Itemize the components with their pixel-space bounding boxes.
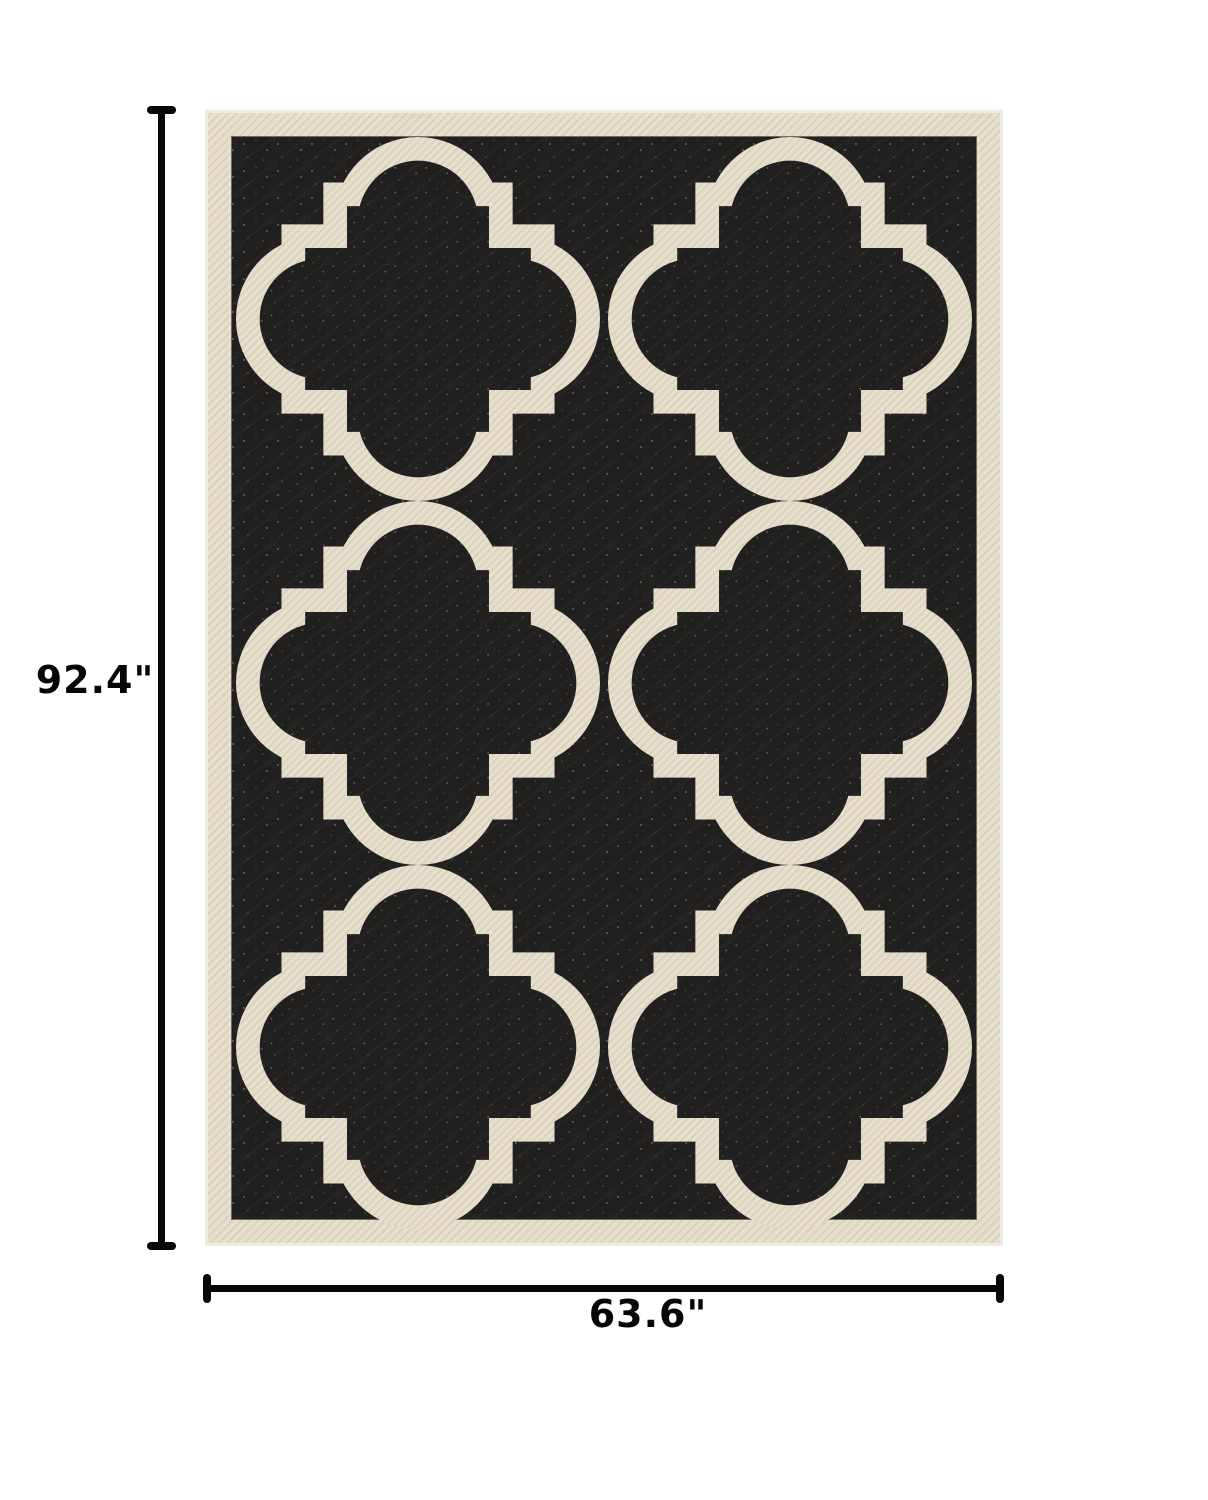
height-label: 92.4" xyxy=(10,658,180,702)
width-label: 63.6" xyxy=(563,1292,733,1336)
width-dimension-line xyxy=(207,1285,1001,1292)
rug-photo xyxy=(205,110,1003,1246)
product-dimension-image: 92.4" 63.6" xyxy=(0,0,1208,1500)
width-dimension-left-cap xyxy=(203,1274,211,1303)
height-dimension-top-cap xyxy=(147,106,176,114)
width-dimension-right-cap xyxy=(996,1274,1004,1303)
height-dimension-bottom-cap xyxy=(147,1242,176,1250)
